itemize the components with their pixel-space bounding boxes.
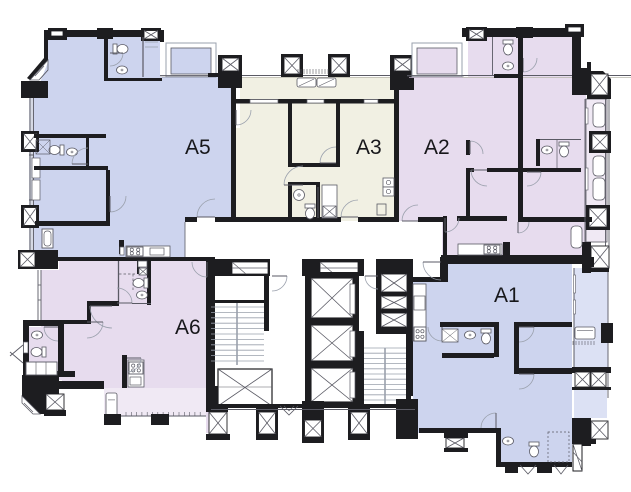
svg-text:A2: A2 (424, 136, 450, 159)
svg-text:A6: A6 (175, 316, 201, 339)
svg-text:A3: A3 (356, 136, 382, 159)
svg-text:A1: A1 (494, 284, 520, 307)
svg-text:A5: A5 (185, 136, 211, 159)
